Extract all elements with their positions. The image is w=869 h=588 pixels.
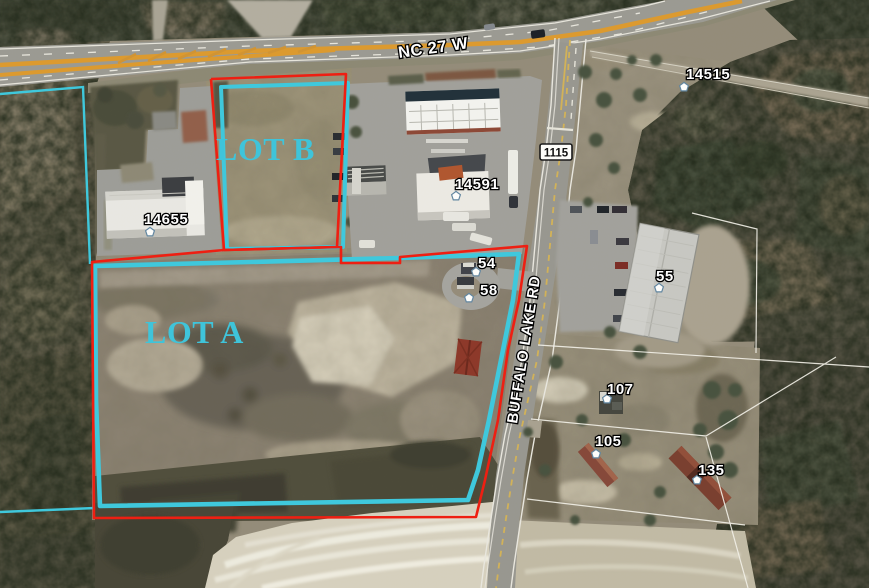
svg-text:LOT B: LOT B xyxy=(216,131,315,167)
svg-text:55: 55 xyxy=(656,268,674,285)
svg-text:14591: 14591 xyxy=(455,176,499,193)
svg-text:54: 54 xyxy=(478,255,496,272)
svg-text:1115: 1115 xyxy=(544,148,569,160)
svg-text:LOT A: LOT A xyxy=(145,314,244,350)
svg-text:14515: 14515 xyxy=(686,66,730,83)
svg-text:105: 105 xyxy=(595,433,622,450)
svg-text:107: 107 xyxy=(607,381,634,398)
svg-text:58: 58 xyxy=(480,282,498,299)
svg-text:135: 135 xyxy=(698,462,725,479)
svg-text:14655: 14655 xyxy=(144,211,188,228)
